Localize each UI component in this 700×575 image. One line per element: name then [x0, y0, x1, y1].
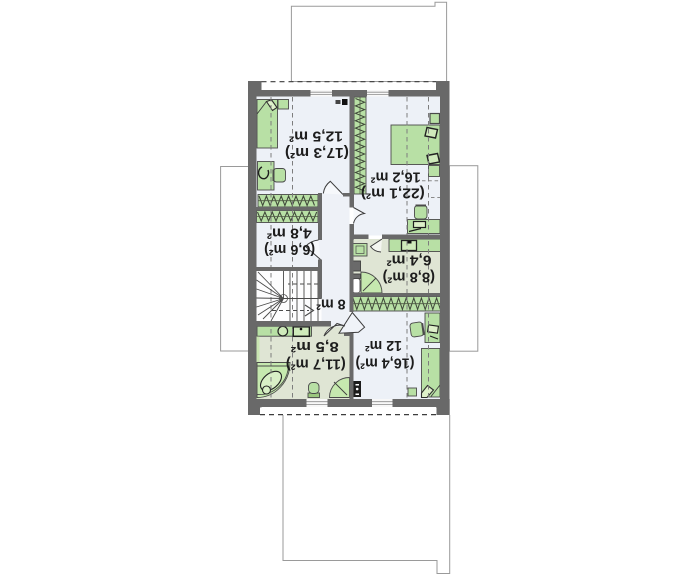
svg-text:12 m²: 12 m²: [365, 337, 402, 354]
svg-text:4,8 m²: 4,8 m²: [267, 225, 312, 242]
svg-text:(11,7 m²): (11,7 m²): [286, 355, 346, 372]
svg-text:8,5 m²: 8,5 m²: [291, 338, 339, 355]
svg-text:(6,6 m²): (6,6 m²): [264, 241, 315, 258]
svg-text:(22,1 m²): (22,1 m²): [361, 184, 425, 201]
svg-text:6,4 m²: 6,4 m²: [387, 252, 432, 269]
svg-text:(8,8 m²): (8,8 m²): [383, 269, 436, 286]
svg-text:8 m²: 8 m²: [316, 296, 346, 313]
svg-text:12,5 m²: 12,5 m²: [289, 127, 343, 144]
svg-text:16,2 m²: 16,2 m²: [371, 168, 421, 185]
svg-text:(16,4 m²): (16,4 m²): [355, 355, 414, 372]
svg-text:(17,3 m²): (17,3 m²): [285, 144, 349, 161]
